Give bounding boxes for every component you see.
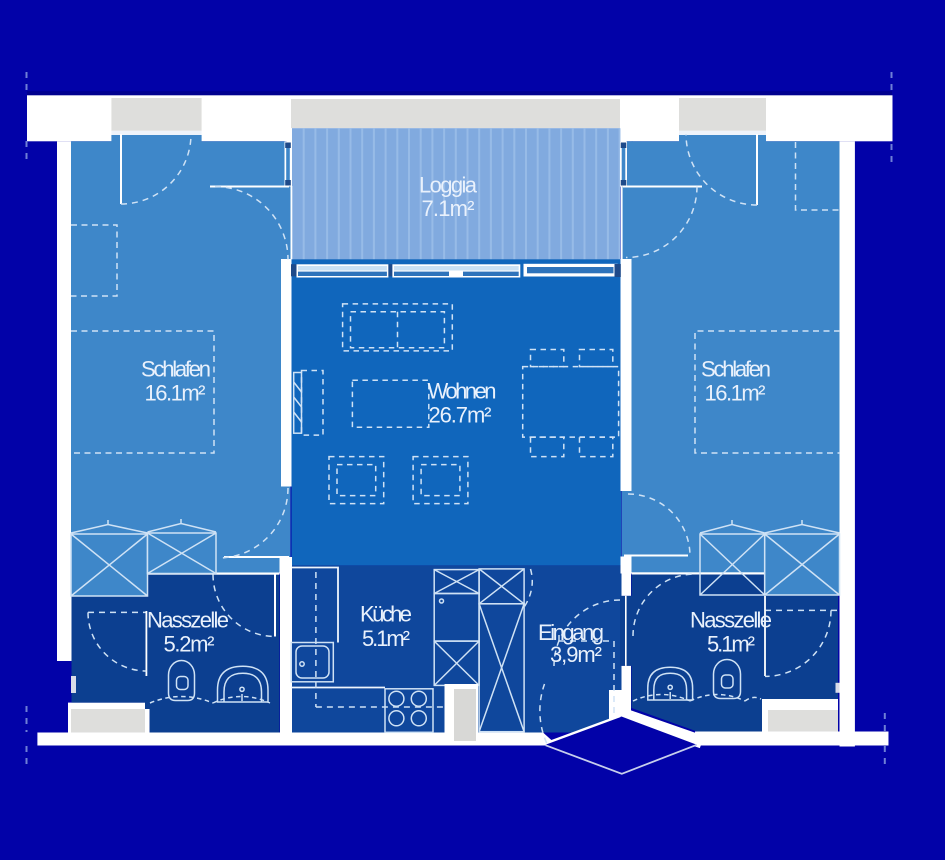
svg-text:5.1m²: 5.1m² (362, 626, 410, 651)
svg-text:Wohnen: Wohnen (428, 379, 497, 404)
svg-text:5.1m²: 5.1m² (707, 632, 755, 657)
svg-text:16.1m²: 16.1m² (705, 381, 766, 406)
svg-text:Loggia: Loggia (419, 173, 478, 198)
svg-text:26.7m²: 26.7m² (429, 403, 492, 428)
svg-text:Schlafen: Schlafen (701, 357, 771, 382)
svg-text:Küche: Küche (360, 602, 412, 627)
svg-text:Nasszelle: Nasszelle (147, 608, 229, 633)
svg-text:7.1m²: 7.1m² (422, 196, 475, 221)
svg-text:16.1m²: 16.1m² (145, 381, 206, 406)
svg-text:Schlafen: Schlafen (141, 357, 211, 382)
svg-text:5.2m²: 5.2m² (164, 632, 215, 657)
svg-text:Nasszelle: Nasszelle (690, 608, 772, 633)
svg-text:3,9m²: 3,9m² (550, 642, 602, 667)
